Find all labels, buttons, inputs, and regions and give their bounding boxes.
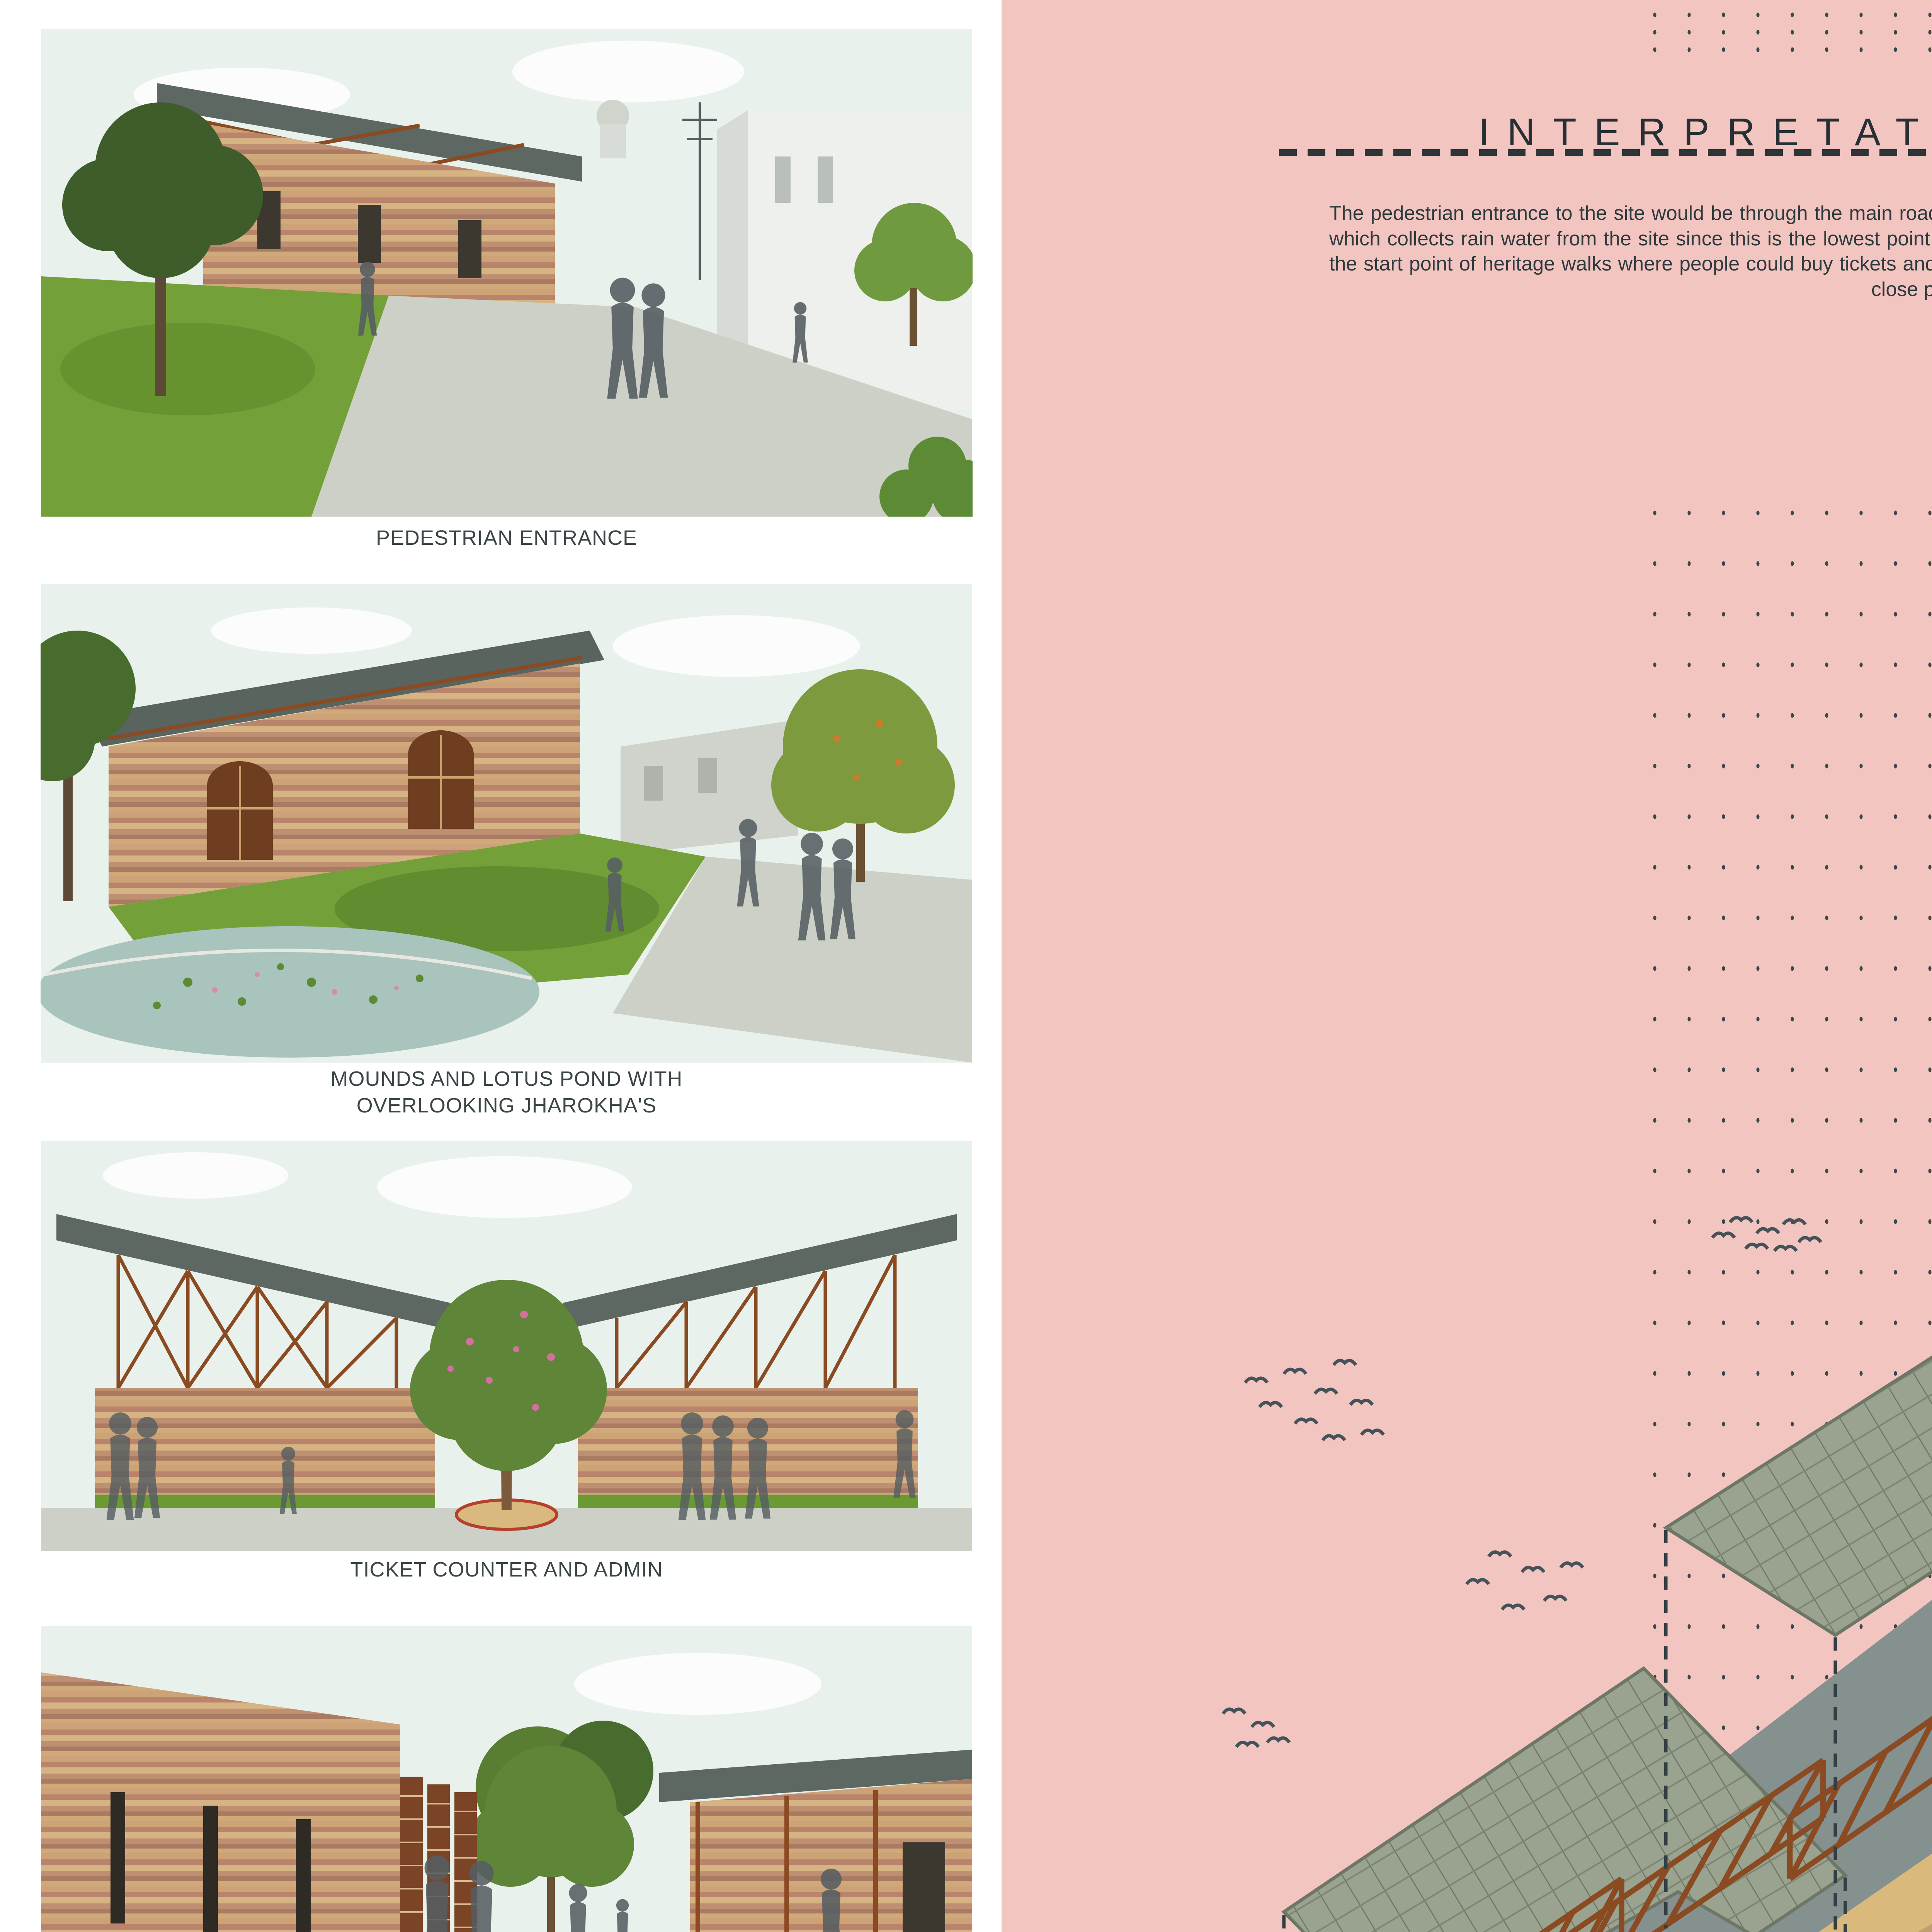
rendering-ticket-counter bbox=[41, 1141, 973, 1551]
bird-icon bbox=[1466, 1552, 1583, 1610]
figure-pedestrian-entrance bbox=[41, 29, 973, 517]
bird-icon bbox=[1223, 1709, 1289, 1747]
page-title: INTERPRETATION CENTRE bbox=[1271, 110, 1932, 155]
rendering-interpretation-centre bbox=[41, 1626, 973, 1932]
rendering-pedestrian-entrance bbox=[41, 29, 973, 517]
exploded-roof-upper bbox=[1666, 1295, 1932, 1635]
mound bbox=[60, 323, 315, 415]
figure-ticket-counter bbox=[41, 1141, 973, 1551]
bird-icon bbox=[1713, 1218, 1821, 1251]
cloud bbox=[574, 1653, 821, 1715]
figure-caption: MOUNDS AND LOTUS POND WITH OVERLOOKING J… bbox=[41, 1066, 973, 1119]
rendering-mounds-lotus-pond bbox=[41, 584, 973, 1063]
dot-grid-top bbox=[1638, 6, 1932, 58]
title-dashed-rule bbox=[1279, 149, 1932, 156]
exploded-axonometric bbox=[1002, 1198, 1932, 1932]
lotus-pond bbox=[41, 926, 539, 1058]
intach-office bbox=[659, 1750, 972, 1932]
bird-icon bbox=[1245, 1361, 1383, 1440]
figure-interpretation-centre bbox=[41, 1626, 973, 1932]
figure-mounds-lotus-pond bbox=[41, 584, 973, 1063]
figure-caption: TICKET COUNTER AND ADMIN bbox=[41, 1556, 973, 1583]
intro-paragraph: The pedestrian entrance to the site woul… bbox=[1329, 201, 1932, 302]
figure-caption: PEDESTRIAN ENTRANCE bbox=[41, 525, 973, 551]
